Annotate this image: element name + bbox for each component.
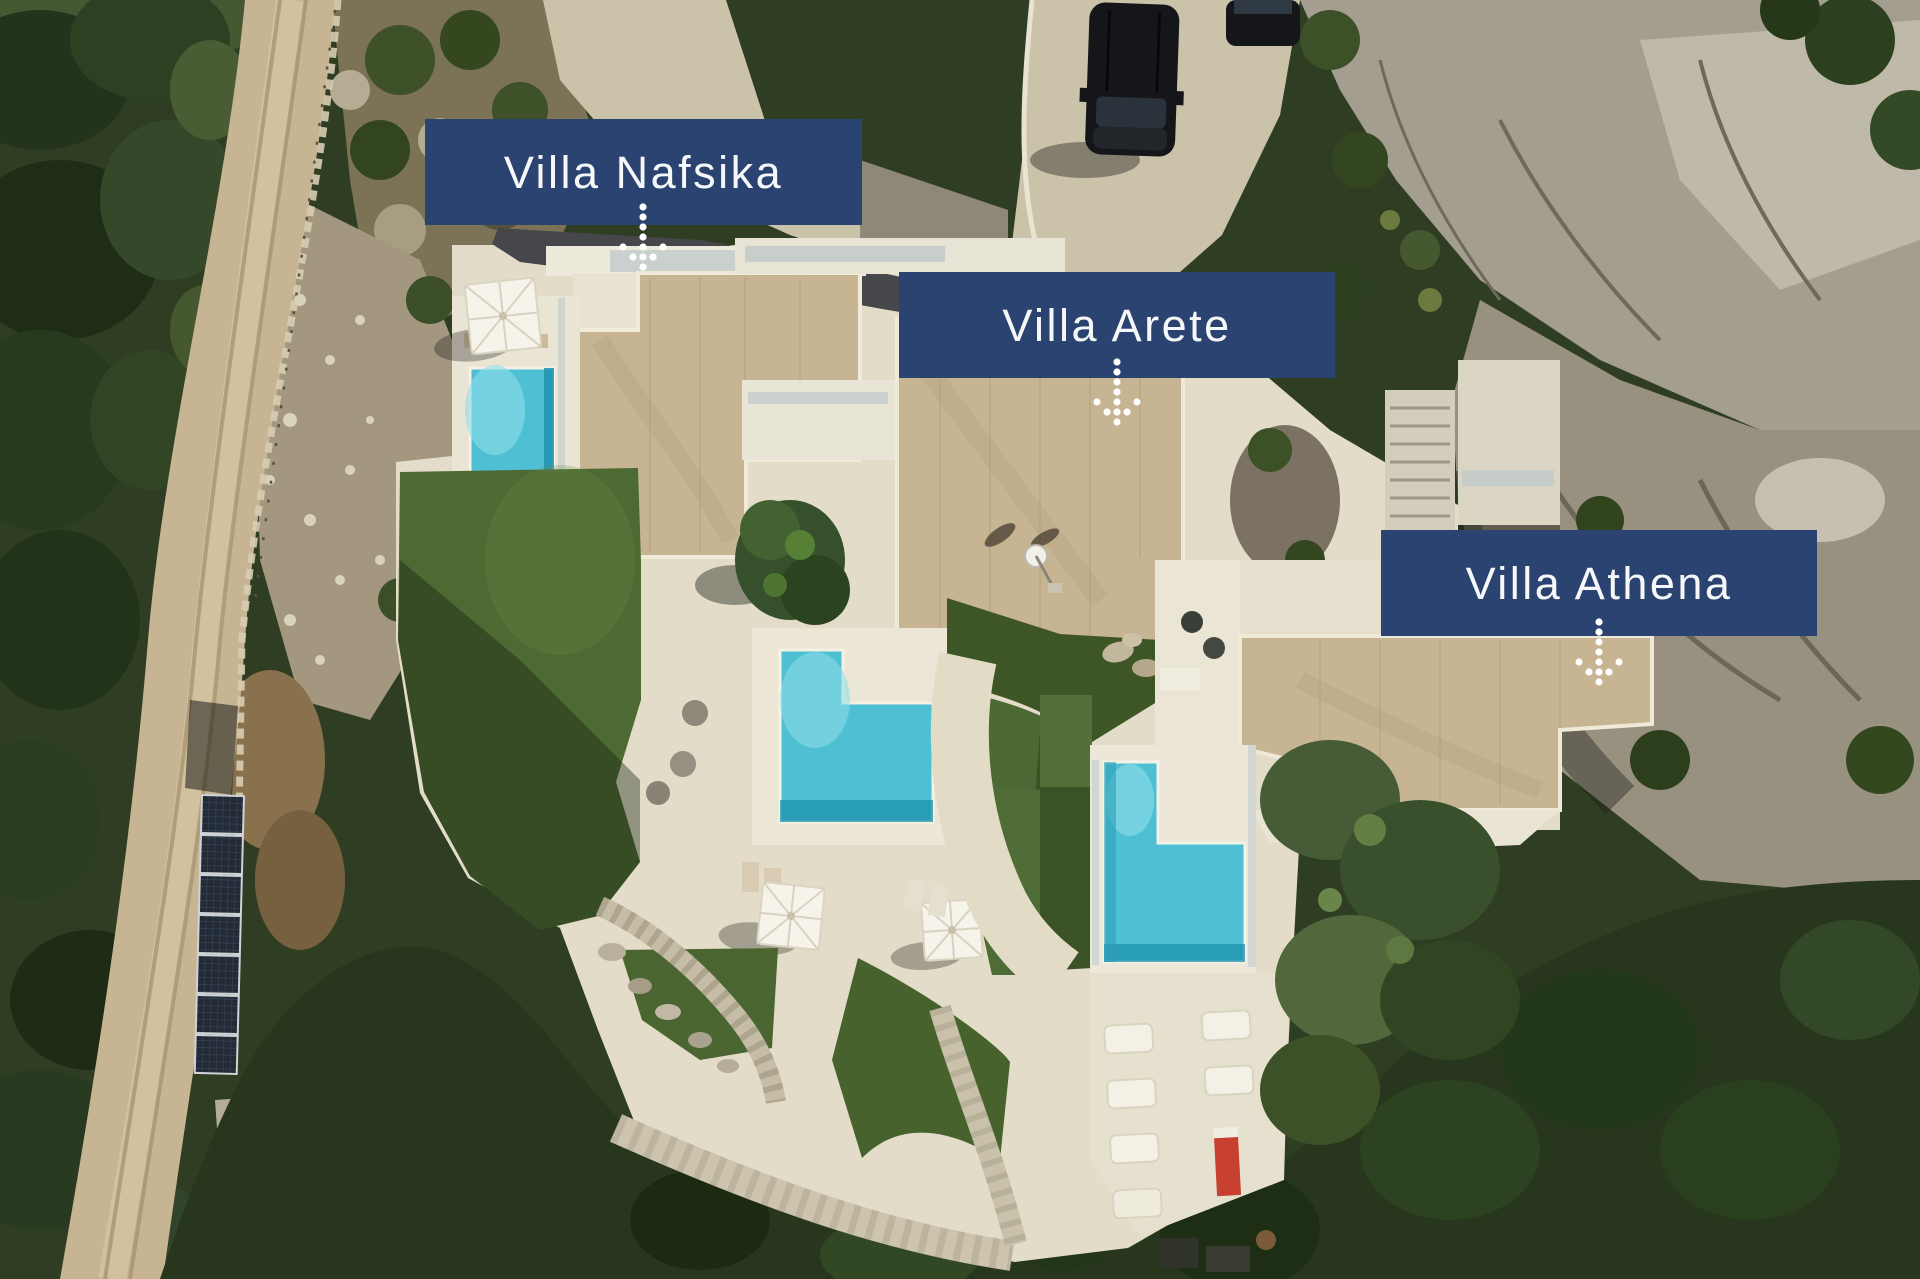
villa-label-athena-text: Villa Athena	[1466, 561, 1733, 606]
beanbag	[670, 751, 696, 777]
red-towel-lounger	[1214, 1137, 1241, 1196]
beanbag-chair	[1203, 637, 1225, 659]
villa-label-arete-text: Villa Arete	[1002, 303, 1231, 348]
dark-car	[1226, 0, 1300, 46]
beanbag	[646, 781, 670, 805]
villa-label-nafsika-text: Villa Nafsika	[504, 150, 783, 195]
dotted-down-arrow-icon	[1093, 358, 1141, 428]
dotted-down-arrow-icon	[619, 203, 667, 273]
beanbag-chair	[1181, 611, 1203, 633]
aerial-photo	[0, 0, 1920, 1279]
beanbag	[682, 700, 708, 726]
aerial-photo-stage: Villa Nafsika Villa Arete Villa Athena	[0, 0, 1920, 1279]
black-suv	[1078, 2, 1187, 158]
dotted-down-arrow-icon	[1575, 618, 1623, 688]
